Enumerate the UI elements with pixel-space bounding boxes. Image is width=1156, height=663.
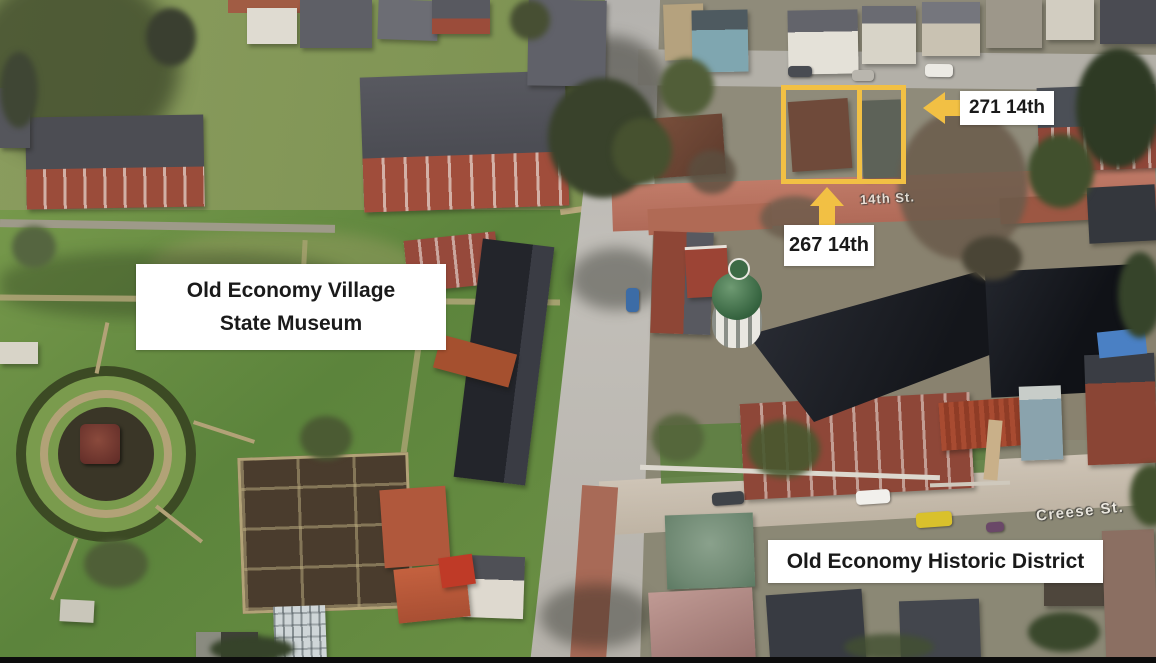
- house: [1102, 529, 1156, 661]
- bottom-border-bar: [0, 657, 1156, 663]
- aerial-map: 14th St. Creese St. 271 14th 267 14th Ol…: [0, 0, 1156, 663]
- tree: [510, 0, 550, 40]
- church-cupola: [728, 258, 750, 280]
- arrow-267: [810, 187, 844, 225]
- tree: [1028, 612, 1100, 652]
- arrow-267-head: [810, 187, 844, 206]
- tree: [0, 52, 38, 128]
- brick-row-building: [25, 114, 205, 209]
- brick-facade: [26, 166, 205, 210]
- tree: [1028, 134, 1094, 208]
- red-roof-shed: [438, 554, 476, 588]
- building: [377, 0, 438, 41]
- white-house: [862, 6, 916, 64]
- tree: [300, 416, 352, 460]
- building: [300, 0, 372, 48]
- brick-dormitory-building: [360, 70, 570, 212]
- arrow-271-head: [923, 92, 945, 124]
- tree: [962, 236, 1022, 280]
- building: [432, 0, 490, 34]
- label-271-14th: 271 14th: [960, 91, 1054, 125]
- corrugated-red-roof: [938, 397, 1025, 451]
- arrow-271: [923, 92, 959, 124]
- tree-shadow: [570, 248, 662, 310]
- tree: [612, 118, 672, 184]
- label-267-14th: 267 14th: [784, 225, 874, 266]
- car: [852, 70, 874, 81]
- tree: [12, 226, 56, 268]
- tree-shadow: [540, 584, 652, 648]
- highlight-rect-parcels: [781, 85, 906, 184]
- highlight-rect-divider: [857, 90, 862, 179]
- dark-roof-building: [1087, 184, 1156, 243]
- tree: [146, 8, 196, 66]
- arrow-267-shaft: [819, 205, 835, 225]
- building: [247, 8, 297, 44]
- orange-roof-house: [379, 486, 450, 568]
- bare-tree-cluster: [898, 110, 1028, 260]
- tree: [660, 58, 714, 116]
- label-museum: Old Economy Village State Museum: [136, 264, 446, 350]
- white-van: [925, 64, 953, 77]
- tree: [652, 414, 704, 462]
- house: [986, 0, 1042, 48]
- house: [922, 2, 980, 56]
- white-shed: [0, 342, 38, 364]
- car: [856, 489, 891, 505]
- green-hip-roof-house: [665, 512, 756, 589]
- yellow-car: [916, 511, 953, 528]
- white-house: [787, 9, 858, 74]
- tree: [1118, 252, 1156, 338]
- tree: [84, 540, 148, 588]
- car: [712, 491, 745, 506]
- car: [788, 66, 812, 77]
- tree: [748, 420, 820, 478]
- house: [1046, 0, 1094, 40]
- car: [986, 521, 1005, 532]
- label-museum-line2: State Museum: [220, 312, 362, 336]
- pink-roof-house: [648, 587, 756, 663]
- car: [626, 288, 639, 312]
- bare-tree: [688, 150, 736, 194]
- label-district-text: Old Economy Historic District: [787, 550, 1085, 574]
- garden-pavilion: [80, 424, 120, 464]
- label-museum-line1: Old Economy Village: [187, 279, 396, 303]
- arrow-271-shaft: [943, 100, 960, 116]
- house: [1100, 0, 1156, 44]
- red-brick-house: [1084, 353, 1156, 465]
- shed: [59, 599, 94, 623]
- brick-facade: [363, 151, 570, 212]
- label-historic-district: Old Economy Historic District: [768, 540, 1103, 583]
- blue-shed: [1019, 385, 1064, 460]
- label-267-text: 267 14th: [789, 234, 869, 257]
- label-271-text: 271 14th: [969, 97, 1045, 119]
